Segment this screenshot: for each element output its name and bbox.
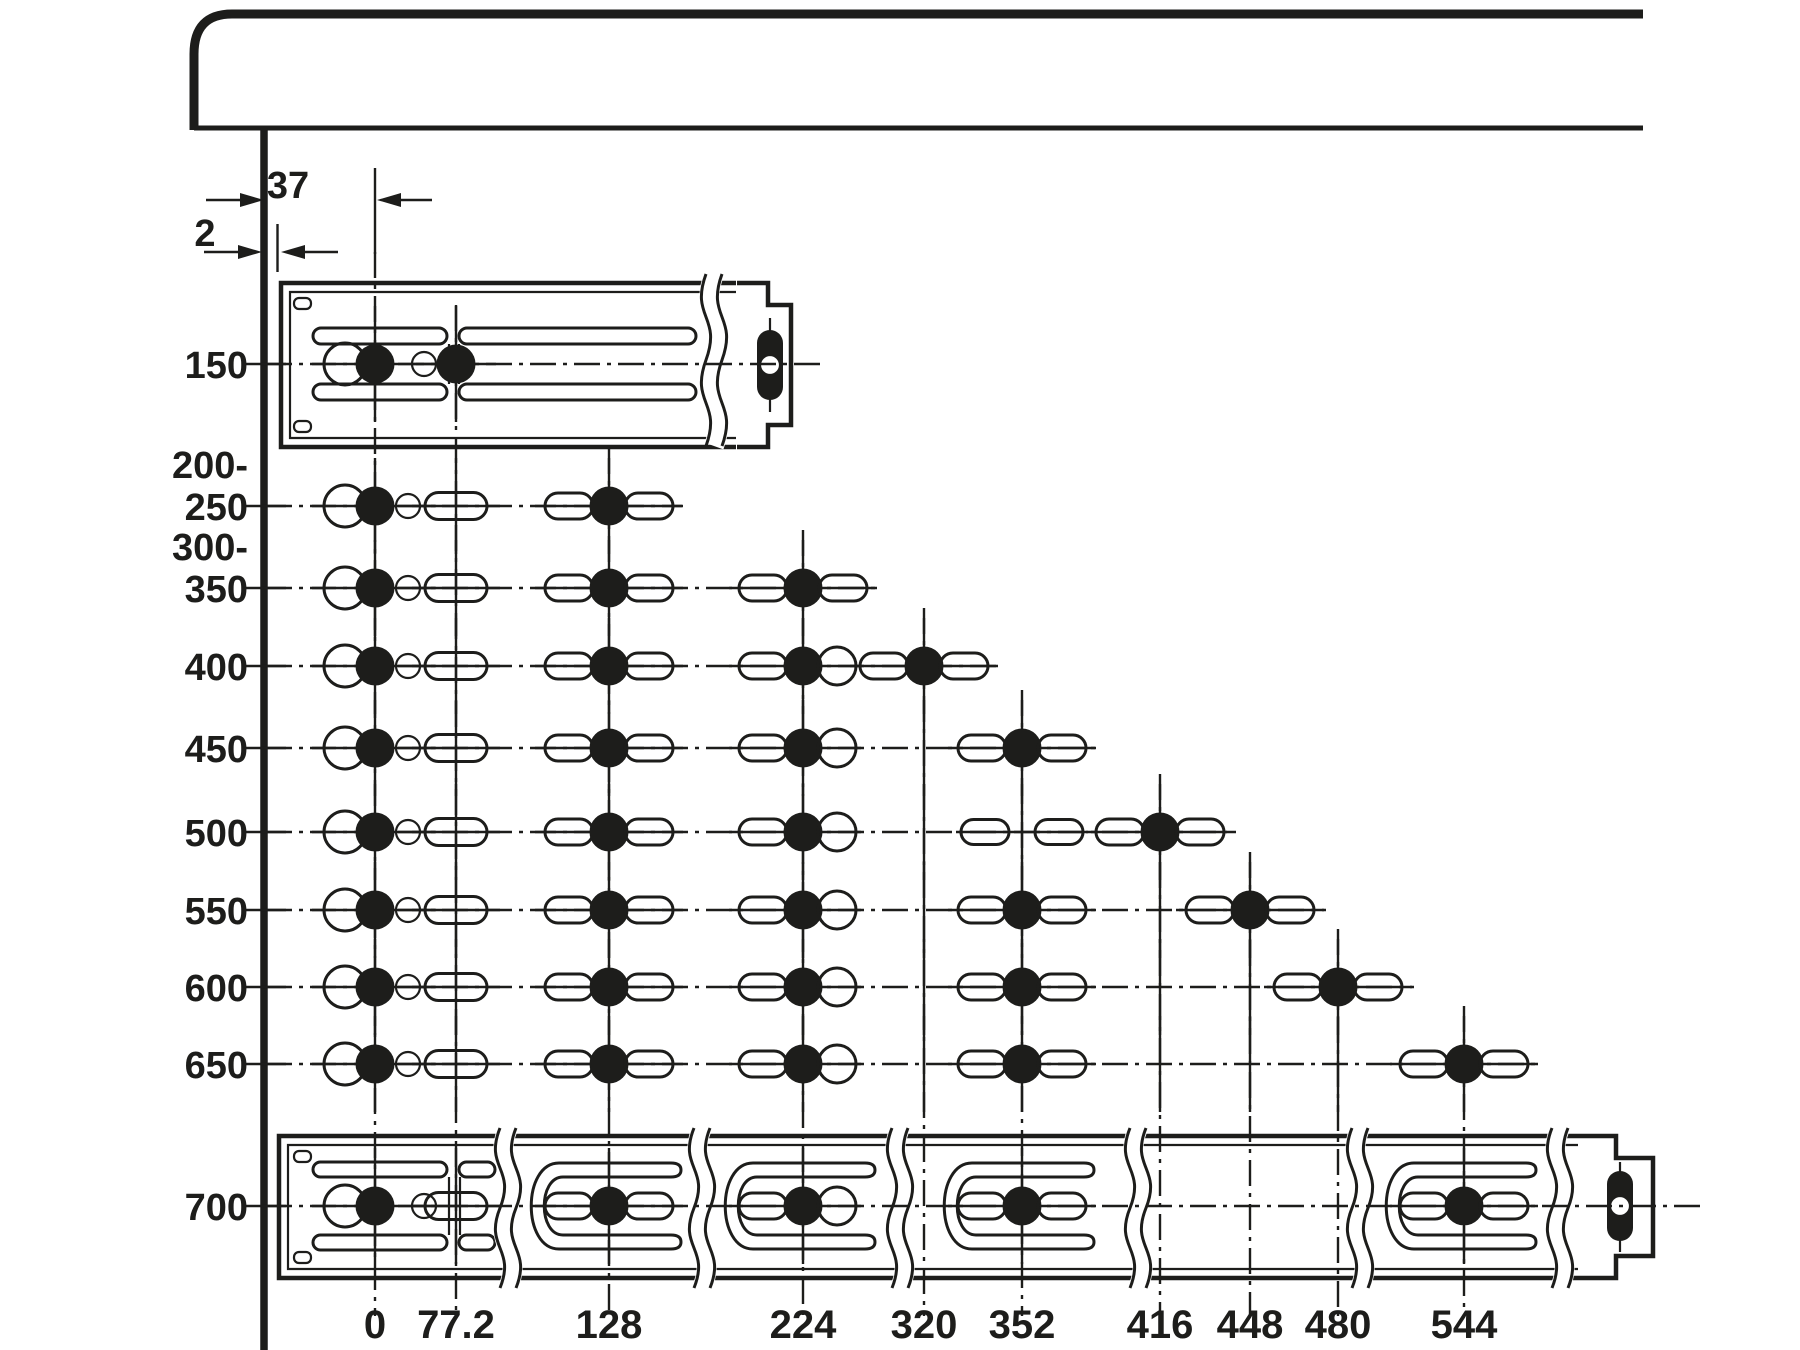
hole-filled (356, 968, 395, 1007)
row-label: 300- (172, 527, 248, 569)
hole-filled (437, 345, 476, 384)
hole-filled (1231, 891, 1270, 930)
hole-filled (356, 569, 395, 608)
column-label-416: 416 (1127, 1303, 1194, 1347)
hole-filled (590, 729, 629, 768)
rail-corner-tab (294, 1151, 311, 1162)
hole-filled (356, 891, 395, 930)
rail-slot-bar (459, 1162, 495, 1177)
centerlines-layer (243, 252, 1700, 1316)
dimension-annotations: 37 2 (194, 165, 432, 272)
column-label-0: 0 (364, 1303, 386, 1347)
drawer-runner-drilling-diagram: 37 2 (0, 0, 1800, 1350)
row-label: 550 (185, 891, 248, 933)
hole-filled (356, 813, 395, 852)
column-label-448: 448 (1217, 1303, 1284, 1347)
row-label: 150 (185, 345, 248, 387)
hole-filled (1003, 891, 1042, 930)
rail-slot-bar (459, 328, 696, 344)
hole-filled (590, 569, 629, 608)
row-label: 700 (185, 1187, 248, 1229)
rail-corner-tab (294, 1252, 311, 1263)
row-label: 500 (185, 813, 248, 855)
hole-filled (1445, 1187, 1484, 1226)
hole-filled (356, 729, 395, 768)
holes-layer (324, 343, 1536, 1249)
hole-filled (1141, 813, 1180, 852)
column-label-77.2: 77.2 (417, 1303, 495, 1347)
hole-filled (356, 487, 395, 526)
cabinet-panel (194, 14, 1643, 130)
hole-filled (590, 1045, 629, 1084)
column-label-544: 544 (1431, 1303, 1498, 1347)
hole-filled (1003, 968, 1042, 1007)
row-label: 650 (185, 1045, 248, 1087)
row-label: 250 (185, 487, 248, 529)
dim-label-37: 37 (267, 165, 309, 207)
hole-filled (356, 1045, 395, 1084)
hole-filled (356, 345, 395, 384)
rail-slot-bar (313, 1162, 447, 1177)
hole-filled (590, 891, 629, 930)
panel-top-edge (194, 14, 1643, 130)
arrow-left-icon (281, 245, 305, 259)
column-label-320: 320 (891, 1303, 958, 1347)
hole-filled (356, 647, 395, 686)
row-label: 350 (185, 569, 248, 611)
row-label: 400 (185, 647, 248, 689)
rail-slot-bar (459, 384, 696, 400)
hole-filled (1003, 1045, 1042, 1084)
row-label: 450 (185, 729, 248, 771)
rail-corner-tab (294, 298, 311, 309)
hole-filled (590, 813, 629, 852)
arrow-left-icon (377, 193, 401, 207)
hole-filled (356, 1187, 395, 1226)
rail-slot-bar (313, 384, 447, 400)
row-label: 200- (172, 445, 248, 487)
rail-corner-tab (294, 421, 311, 432)
hole-filled (905, 647, 944, 686)
hole-filled (1003, 729, 1042, 768)
arrow-right-icon (238, 245, 262, 259)
rail-slot-bar (313, 1235, 447, 1250)
column-label-480: 480 (1305, 1303, 1372, 1347)
column-label-224: 224 (770, 1303, 837, 1347)
hole-filled (784, 569, 823, 608)
row-label: 600 (185, 968, 248, 1010)
hole-filled (1445, 1045, 1484, 1084)
hole-filled (1003, 1187, 1042, 1226)
hole-filled (1319, 968, 1358, 1007)
hole-filled (590, 647, 629, 686)
column-label-128: 128 (576, 1303, 643, 1347)
hole-filled (590, 1187, 629, 1226)
rail-slot-bar (313, 328, 447, 344)
rail-slot-bar (459, 1235, 495, 1250)
dim-label-2: 2 (194, 213, 215, 255)
hole-filled (590, 968, 629, 1007)
column-label-352: 352 (989, 1303, 1056, 1347)
hole-filled (590, 487, 629, 526)
